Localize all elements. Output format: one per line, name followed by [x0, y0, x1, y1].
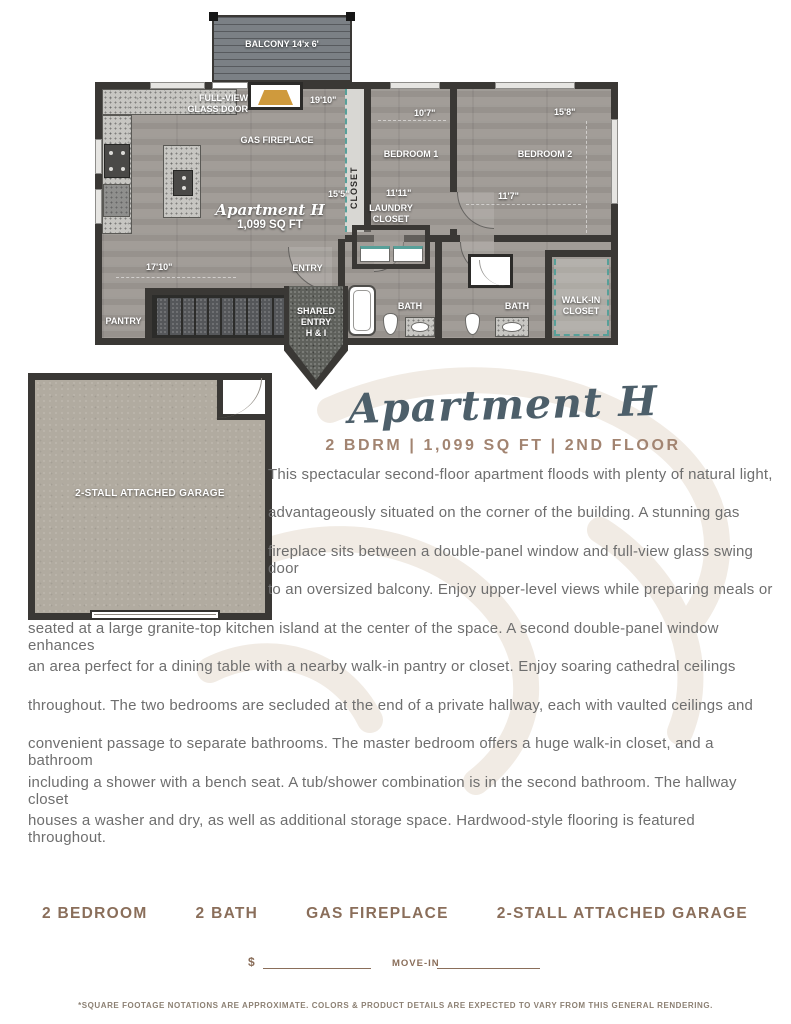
- page-title: Apartment H: [287, 375, 718, 434]
- dimension-bedroom1-width: 10'7": [414, 108, 435, 118]
- balcony: BALCONY 14'x 6': [212, 15, 352, 82]
- garage-overhead-door-icon: [90, 610, 220, 620]
- price-blank-line: [263, 953, 371, 969]
- walk-in-closet-label: WALK-IN CLOSET: [552, 295, 610, 317]
- window: [150, 82, 205, 89]
- wall: [145, 288, 152, 338]
- dryer-icon: [393, 246, 423, 262]
- door-arc-icon: [457, 192, 494, 229]
- gas-fireplace-label: GAS FIREPLACE: [232, 135, 322, 146]
- sink-icon: [495, 317, 529, 337]
- toilet-icon: [383, 313, 398, 335]
- description-line: houses a washer and dry, as well as addi…: [28, 812, 776, 850]
- bathtub-icon: [348, 285, 376, 336]
- kitchen-island-icon: [163, 145, 201, 218]
- sink-icon: [405, 317, 435, 337]
- balcony-label: BALCONY 14'x 6': [214, 39, 350, 50]
- dimension-guide: [466, 204, 581, 205]
- shared-entry-label: SHARED ENTRY H & I: [286, 306, 346, 338]
- island-sink-icon: [173, 170, 193, 196]
- description-line: seated at a large granite-top kitchen is…: [28, 620, 776, 658]
- window: [95, 139, 102, 174]
- description-line: including a shower with a bench seat. A …: [28, 774, 776, 812]
- price-row: $ MOVE-IN: [248, 953, 548, 973]
- description-line: to an oversized balcony. Enjoy upper-lev…: [268, 581, 778, 619]
- wall: [145, 288, 288, 295]
- pantry-label: PANTRY: [102, 316, 145, 327]
- feature-bedrooms: 2 BEDROOM: [42, 905, 148, 923]
- closet-label: CLOSET: [349, 113, 363, 209]
- plan-apartment-name: Apartment H: [200, 201, 340, 219]
- wall: [545, 250, 552, 338]
- garage-floor-plan: 2-STALL ATTACHED GARAGE: [28, 373, 272, 620]
- description-line: fireplace sits between a double-panel wi…: [268, 543, 778, 581]
- dimension-guide: [378, 120, 446, 121]
- description-block-indented: This spectacular second-floor apartment …: [268, 466, 778, 620]
- description-line: advantageously situated on the corner of…: [268, 504, 778, 542]
- toilet-icon: [465, 313, 480, 335]
- fireplace-icon: [248, 82, 303, 110]
- dimension-bedroom2-width: 11'7": [498, 191, 519, 201]
- dimension-guide: [116, 277, 236, 278]
- glass-door-opening: [212, 82, 248, 89]
- window: [495, 82, 575, 89]
- bath2-label: BATH: [497, 301, 537, 312]
- window: [611, 119, 618, 204]
- plan-apartment-sqft: 1,099 SQ FT: [200, 219, 340, 233]
- bedroom1-label: BEDROOM 1: [372, 149, 450, 160]
- washer-icon: [360, 246, 390, 262]
- feature-baths: 2 BATH: [196, 905, 259, 923]
- stove-icon: [104, 144, 130, 178]
- window: [95, 189, 102, 224]
- balcony-post-icon: [346, 12, 355, 21]
- garage-entry-door: [217, 380, 265, 420]
- move-in-blank-line: [437, 953, 540, 969]
- dimension-bedroom2-depth: 15'8": [554, 107, 575, 117]
- feature-garage: 2-STALL ATTACHED GARAGE: [497, 905, 748, 923]
- balcony-post-icon: [209, 12, 218, 21]
- dimension-bedroom1-depth: 11'11": [386, 188, 411, 198]
- feature-fireplace: GAS FIREPLACE: [306, 905, 449, 923]
- description-line: throughout. The two bedrooms are seclude…: [28, 697, 776, 735]
- window: [390, 82, 440, 89]
- footnote: *SQUARE FOOTAGE NOTATIONS ARE APPROXIMAT…: [0, 1001, 791, 1010]
- garage-label: 2-STALL ATTACHED GARAGE: [35, 488, 265, 500]
- wall: [545, 250, 611, 257]
- wall: [435, 242, 442, 338]
- move-in-label: MOVE-IN: [392, 958, 440, 969]
- bath1-label: BATH: [390, 301, 430, 312]
- description-line: an area perfect for a dining table with …: [28, 658, 776, 696]
- bedroom2-label: BEDROOM 2: [506, 149, 584, 160]
- features-row: 2 BEDROOM 2 BATH GAS FIREPLACE 2-STALL A…: [42, 905, 748, 923]
- wall: [494, 235, 611, 242]
- fridge-icon: [103, 184, 130, 217]
- description-block-full: seated at a large granite-top kitchen is…: [28, 620, 776, 850]
- laundry-closet-label: LAUNDRY CLOSET: [352, 203, 430, 225]
- dimension-living-width: 19'10": [310, 95, 336, 105]
- flyer-page: { "header": { "title": "Apartment H", "s…: [0, 0, 791, 1024]
- glass-door-label: FULL-VIEW GLASS DOOR: [152, 93, 248, 115]
- apartment-floor-plan: BALCONY 14'x 6' CLOSET: [95, 82, 618, 345]
- shower-icon: [468, 254, 513, 288]
- dimension-guide: [586, 121, 587, 233]
- page-subtitle: 2 BDRM | 1,099 SQ FT | 2ND FLOOR: [288, 437, 718, 455]
- currency-symbol: $: [248, 955, 255, 969]
- laundry-closet: [352, 225, 430, 269]
- dimension-living-depth: 15'5": [328, 189, 349, 199]
- dimension-kitchen-width: 17'10": [146, 262, 172, 272]
- entry-label: ENTRY: [285, 263, 330, 274]
- description-line: This spectacular second-floor apartment …: [268, 466, 778, 504]
- wall: [450, 89, 457, 192]
- description-line: convenient passage to separate bathrooms…: [28, 735, 776, 773]
